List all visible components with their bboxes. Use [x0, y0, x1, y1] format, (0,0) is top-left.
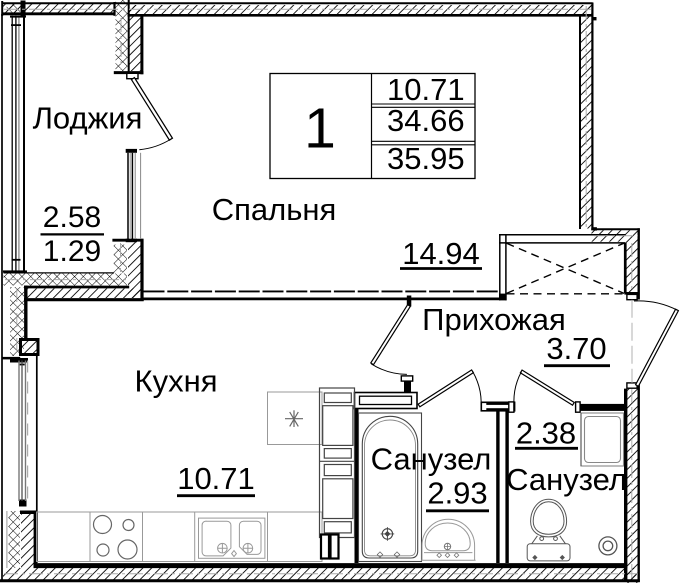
svg-text:35.95: 35.95 [387, 141, 465, 176]
svg-text:14.94: 14.94 [402, 236, 480, 271]
svg-text:2.93: 2.93 [427, 476, 487, 511]
svg-text:Санузел: Санузел [371, 442, 492, 477]
svg-text:Прихожая: Прихожая [422, 302, 566, 337]
svg-text:Спальня: Спальня [212, 192, 337, 227]
svg-text:3.70: 3.70 [546, 331, 606, 366]
svg-text:2.38: 2.38 [516, 415, 576, 450]
svg-text:10.71: 10.71 [177, 461, 255, 496]
svg-text:2.58: 2.58 [43, 201, 101, 234]
svg-text:Санузел: Санузел [506, 462, 627, 497]
svg-text:Кухня: Кухня [135, 364, 218, 399]
svg-text:1.29: 1.29 [43, 235, 101, 268]
svg-text:10.71: 10.71 [387, 72, 465, 107]
svg-text:1: 1 [304, 97, 336, 161]
svg-text:Лоджия: Лоджия [33, 101, 143, 136]
svg-text:34.66: 34.66 [387, 103, 465, 138]
